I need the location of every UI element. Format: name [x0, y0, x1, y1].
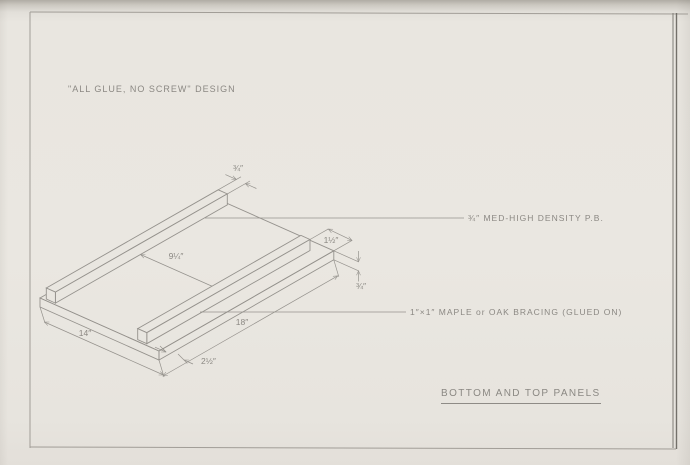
dim-thickness: [334, 251, 359, 282]
dim-front-offset-label: 2½″: [201, 356, 216, 366]
dim-brace-width: [218, 175, 256, 194]
drawing-title: BOTTOM AND TOP PANELS: [441, 388, 601, 404]
border-frame: [30, 12, 688, 449]
drawing-sheet: ¾″ 9¼″ 1½″ ¾″ 18″ 14″ 2½″ "ALL GLUE, NO …: [0, 0, 690, 465]
back-brace-front-face: [55, 194, 227, 303]
design-note: "ALL GLUE, NO SCREW" DESIGN: [68, 83, 236, 95]
front-brace: [138, 235, 310, 343]
dim-front-offset: [155, 346, 193, 364]
callout-panel-material: ¾″ MED-HIGH DENSITY P.B.: [468, 212, 604, 224]
dim-thickness-label: ¾″: [356, 281, 366, 291]
dim-length-label: 18″: [236, 317, 248, 327]
border-top: [30, 12, 688, 14]
dim-depth-label: 14″: [79, 328, 91, 338]
front-brace-top-face: [138, 235, 310, 332]
callout-bracing: 1″×1″ MAPLE or OAK BRACING (GLUED ON): [410, 306, 622, 318]
border-bottom: [30, 447, 676, 449]
back-brace: [46, 190, 227, 303]
dim-end-inset-label: 1½″: [324, 235, 339, 245]
dim-brace-width-label: ¾″: [233, 163, 243, 173]
dim-brace-spacing-label: 9¼″: [169, 251, 184, 261]
back-brace-top-face: [46, 190, 227, 292]
